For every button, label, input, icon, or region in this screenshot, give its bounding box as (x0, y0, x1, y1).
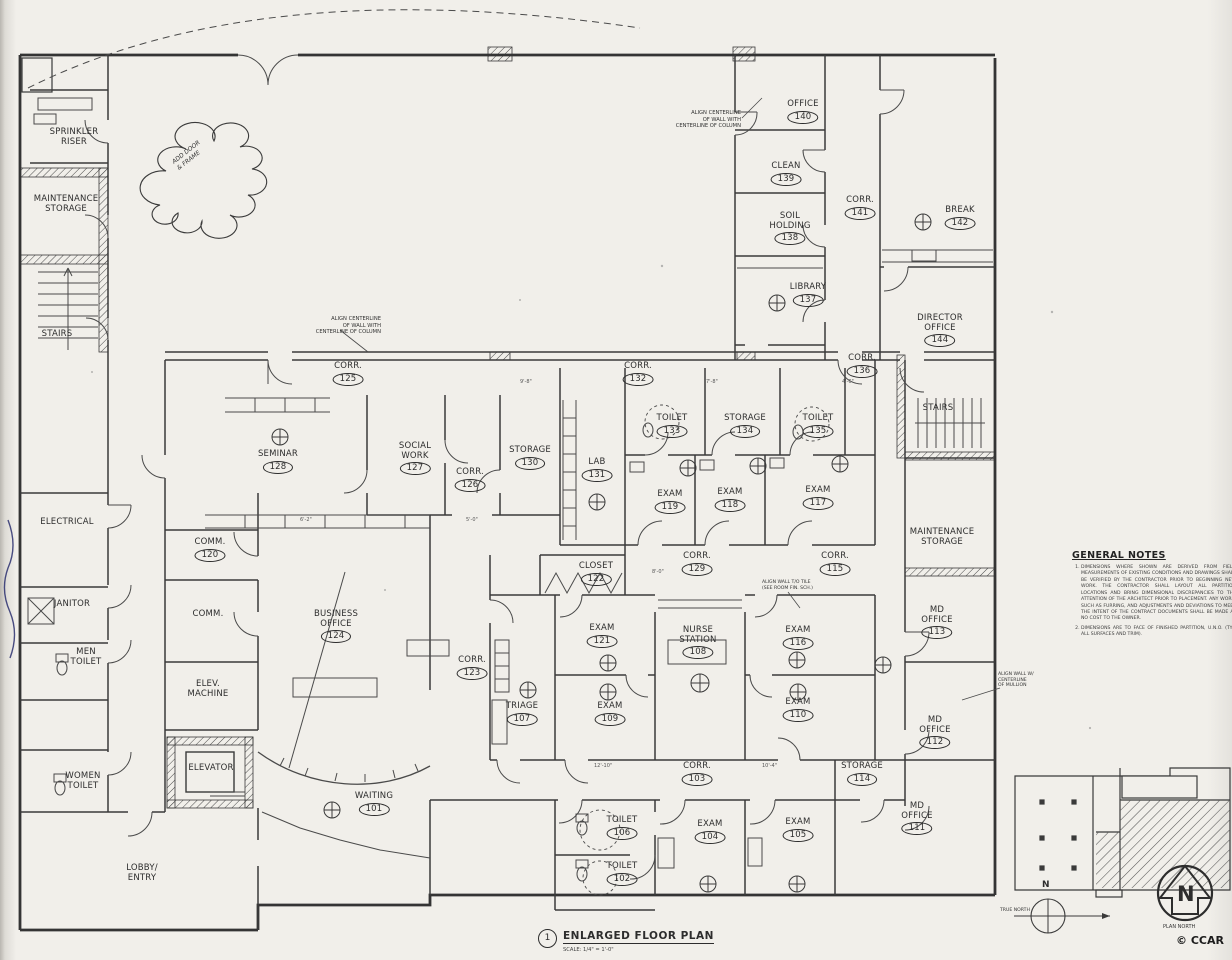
room-name: STAIRS (923, 403, 954, 413)
room-name: WOMEN TOILET (65, 771, 100, 791)
room-name: CORR. (846, 195, 874, 205)
room-name: CORR. (848, 353, 876, 363)
room-maintenance-storage-nw: MAINTENANCE STORAGE (34, 195, 99, 214)
general-notes-heading: GENERAL NOTES (1072, 550, 1232, 561)
room-name: CORR. (683, 761, 711, 771)
room-exam-121: EXAM121 (587, 624, 618, 648)
room-name: TRIAGE (506, 701, 538, 711)
dimension-label: 10'-4" (762, 763, 777, 769)
room-exam-105: EXAM105 (783, 818, 814, 842)
room-name: SOIL HOLDING (769, 211, 810, 231)
room-corr-129: CORR.129 (682, 552, 713, 576)
general-note-item: DIMENSIONS ARE TO FACE OF FINISHED PARTI… (1081, 626, 1232, 639)
room-name: MEN TOILET (71, 647, 102, 667)
room-name: EXAM (785, 817, 810, 827)
room-number-oval: 134 (730, 425, 761, 438)
room-number-oval: 130 (515, 457, 546, 470)
room-clean-139: CLEAN139 (771, 162, 802, 186)
room-name: EXAM (785, 625, 810, 635)
room-number-oval: 108 (683, 646, 714, 659)
stair-treads (38, 268, 985, 448)
room-number-oval: 113 (922, 626, 953, 639)
room-name: TOILET (803, 413, 834, 423)
room-name: COMM. (195, 537, 226, 547)
room-name: STAIRS (42, 329, 73, 339)
room-number-oval: 109 (595, 713, 626, 726)
room-md-office-113: MD OFFICE113 (921, 606, 952, 639)
room-number-oval: 141 (845, 207, 876, 220)
room-corr-103: CORR.103 (682, 762, 713, 786)
room-number-oval: 122 (581, 573, 612, 586)
room-lab-131: LAB131 (582, 458, 613, 482)
room-name: TOILET (607, 861, 638, 871)
room-name: MD OFFICE (921, 605, 952, 625)
room-number-oval: 128 (263, 461, 294, 474)
room-name: MD OFFICE (919, 715, 950, 735)
room-number-oval: 118 (715, 499, 746, 512)
dimension-label: 12'-10" (594, 763, 612, 769)
room-name: OFFICE (787, 99, 818, 109)
room-corr-132: CORR.132 (623, 362, 654, 386)
room-name: TOILET (657, 413, 688, 423)
room-name: WAITING (355, 791, 393, 801)
room-name: EXAM (717, 487, 742, 497)
room-exam-117: EXAM117 (803, 486, 834, 510)
annotation-align-tile: ALIGN WALL T/O TILE (SEE ROOM FIN. SCH.) (762, 580, 846, 591)
room-number-oval: 137 (793, 294, 824, 307)
room-number-oval: 131 (582, 469, 613, 482)
dimension-label: 6'-2" (300, 517, 312, 523)
room-number-oval: 132 (623, 373, 654, 386)
annotation-align-column-1: ALIGN CENTERLINE OF WALL WITH CENTERLINE… (655, 110, 741, 130)
room-triage-107: TRIAGE107 (506, 702, 538, 726)
room-number-oval: 129 (682, 563, 713, 576)
room-name: SOCIAL WORK (399, 441, 431, 461)
dimension-label: 9'-8" (520, 379, 532, 385)
room-director-office-144: DIRECTOR OFFICE144 (917, 314, 963, 347)
room-seminar-128: SEMINAR128 (258, 450, 298, 474)
room-library-137: LIBRARY137 (790, 283, 826, 307)
room-name: STORAGE (841, 761, 883, 771)
room-number-oval: 127 (400, 462, 431, 475)
room-storage-134: STORAGE134 (724, 414, 766, 438)
room-exam-119: EXAM119 (655, 490, 686, 514)
room-business-office-124: BUSINESS OFFICE124 (314, 610, 358, 643)
dimension-label: 7'-8" (706, 379, 718, 385)
room-name: COMM. (193, 609, 224, 619)
room-sprinkler-riser: SPRINKLER RISER (50, 128, 99, 147)
room-number-oval: 116 (783, 637, 814, 650)
room-number-oval: 102 (607, 873, 638, 886)
room-name: TOILET (607, 815, 638, 825)
room-name: LAB (588, 457, 605, 467)
annotation-align-mullion: ALIGN WALL W/ CENTERLINE OF MULLION (998, 672, 1058, 689)
room-name: MAINTENANCE STORAGE (34, 194, 99, 214)
room-name: CORR. (624, 361, 652, 371)
room-toilet-106: TOILET106 (607, 816, 638, 840)
dimension-label: 5'-0" (466, 517, 478, 523)
copyright-text: © CCAR (1176, 934, 1224, 947)
room-name: JANITOR (54, 599, 90, 609)
room-name: LOBBY/ ENTRY (126, 863, 158, 883)
true-north-icon (1014, 899, 1110, 933)
room-name: CORR. (821, 551, 849, 561)
room-name: BREAK (945, 205, 975, 215)
room-number-oval: 135 (803, 425, 834, 438)
plan-title: ENLARGED FLOOR PLAN (563, 930, 714, 944)
room-name: CORR. (683, 551, 711, 561)
room-name: SPRINKLER RISER (50, 127, 99, 147)
room-elevator: ELEVATOR (188, 764, 233, 774)
room-storage-114: STORAGE114 (841, 762, 883, 786)
handwritten-mark (4, 520, 14, 658)
room-number-oval: 103 (682, 773, 713, 786)
room-corr-141: CORR.141 (845, 196, 876, 220)
room-number-oval: 133 (657, 425, 688, 438)
true-north-label: TRUE NORTH (1000, 908, 1030, 913)
door-swings (85, 55, 929, 879)
hatched-walls (20, 47, 995, 808)
room-social-work-127: SOCIAL WORK127 (399, 442, 431, 475)
room-name: EXAM (785, 697, 810, 707)
room-nurse-station-108: NURSE STATION108 (679, 626, 716, 659)
room-break-142: BREAK142 (945, 206, 976, 230)
interior-walls (20, 55, 995, 930)
room-corr-125: CORR.125 (333, 362, 364, 386)
room-exam-104: EXAM104 (695, 820, 726, 844)
room-number-oval: 110 (783, 709, 814, 722)
room-name: CORR. (458, 655, 486, 665)
room-name: BUSINESS OFFICE (314, 609, 358, 629)
room-stairs-ne: STAIRS (923, 404, 954, 414)
room-number-oval: 121 (587, 635, 618, 648)
room-name: ELEVATOR (188, 763, 233, 773)
room-number-oval: 104 (695, 831, 726, 844)
room-number-oval: 138 (775, 232, 806, 245)
room-elev-machine: ELEV. MACHINE (188, 680, 229, 699)
room-number-oval: 142 (945, 217, 976, 230)
room-soil-holding-138: SOIL HOLDING138 (769, 212, 810, 245)
plan-north-letter: N (1177, 882, 1195, 906)
floor-plan-sheet: SPRINKLER RISER MAINTENANCE STORAGE STAI… (0, 0, 1232, 960)
key-plan (1015, 768, 1230, 897)
room-number-oval: 119 (655, 501, 686, 514)
room-name: ELEV. MACHINE (188, 679, 229, 699)
room-number-oval: 126 (455, 479, 486, 492)
room-name: CORR. (334, 361, 362, 371)
dimension-label: 8'-0" (652, 569, 664, 575)
room-women-toilet: WOMEN TOILET (65, 772, 100, 791)
room-name: MD OFFICE (901, 801, 932, 821)
room-corr-115: CORR.115 (820, 552, 851, 576)
room-number-oval: 112 (920, 736, 951, 749)
room-electrical: ELECTRICAL (40, 518, 94, 528)
room-name: STORAGE (509, 445, 551, 455)
true-north-letter: N (1042, 880, 1050, 890)
room-number-oval: 114 (847, 773, 878, 786)
room-toilet-135: TOILET135 (803, 414, 834, 438)
room-men-toilet: MEN TOILET (71, 648, 102, 667)
room-name: EXAM (597, 701, 622, 711)
exterior-walls (20, 55, 995, 930)
room-number-oval: 124 (321, 630, 352, 643)
plan-number-bubble: 1 (538, 929, 557, 948)
room-md-office-112: MD OFFICE112 (919, 716, 950, 749)
room-number-oval: 111 (902, 822, 933, 835)
room-number-oval: 125 (333, 373, 364, 386)
room-number-oval: 106 (607, 827, 638, 840)
room-maintenance-storage-e: MAINTENANCE STORAGE (910, 528, 975, 547)
room-name: SEMINAR (258, 449, 298, 459)
plan-scale: SCALE: 1/4" = 1'-0" (563, 947, 614, 953)
room-name: EXAM (697, 819, 722, 829)
plan-north-label: PLAN NORTH (1163, 924, 1195, 930)
room-name: CORR. (456, 467, 484, 477)
room-stairs-nw: STAIRS (42, 330, 73, 340)
room-comm-120: COMM.120 (195, 538, 226, 562)
room-name: EXAM (805, 485, 830, 495)
general-note-item: DIMENSIONS WHERE SHOWN ARE DERIVED FROM … (1081, 565, 1232, 623)
room-number-oval: 139 (771, 173, 802, 186)
room-name: CLOSET (579, 561, 613, 571)
room-name: CLEAN (771, 161, 800, 171)
room-exam-116: EXAM116 (783, 626, 814, 650)
room-name: NURSE STATION (679, 625, 716, 645)
room-number-oval: 105 (783, 829, 814, 842)
room-corr-126: CORR.126 (455, 468, 486, 492)
room-name: STORAGE (724, 413, 766, 423)
room-number-oval: 140 (788, 111, 819, 124)
general-notes: GENERAL NOTES DIMENSIONS WHERE SHOWN ARE… (1072, 550, 1232, 642)
room-number-oval: 136 (847, 365, 878, 378)
room-exam-109: EXAM109 (595, 702, 626, 726)
room-toilet-102: TOILET102 (607, 862, 638, 886)
revision-cloud (140, 123, 267, 239)
room-comm: COMM. (193, 610, 224, 620)
room-name: ELECTRICAL (40, 517, 94, 527)
dimension-label: 4'-6" (842, 379, 854, 385)
room-corr-136: CORR.136 (847, 354, 878, 378)
room-waiting-101: WAITING101 (355, 792, 393, 816)
annotation-align-column-2: ALIGN CENTERLINE OF WALL WITH CENTERLINE… (293, 316, 381, 336)
room-exam-110: EXAM110 (783, 698, 814, 722)
room-name: EXAM (657, 489, 682, 499)
room-number-oval: 123 (457, 667, 488, 680)
room-number-oval: 101 (359, 803, 390, 816)
room-exam-118: EXAM118 (715, 488, 746, 512)
room-corr-123: CORR.123 (457, 656, 488, 680)
room-number-oval: 120 (195, 549, 226, 562)
room-md-office-111: MD OFFICE111 (901, 802, 932, 835)
room-name: LIBRARY (790, 282, 826, 292)
room-number-oval: 144 (925, 334, 956, 347)
room-name: DIRECTOR OFFICE (917, 313, 963, 333)
room-number-oval: 117 (803, 497, 834, 510)
room-number-oval: 107 (507, 713, 538, 726)
room-number-oval: 115 (820, 563, 851, 576)
room-closet-122: CLOSET122 (579, 562, 613, 586)
room-janitor: JANITOR (54, 600, 90, 610)
room-office-140: OFFICE140 (787, 100, 818, 124)
room-name: MAINTENANCE STORAGE (910, 527, 975, 547)
room-lobby-entry: LOBBY/ ENTRY (126, 864, 158, 883)
room-toilet-133: TOILET133 (657, 414, 688, 438)
room-name: EXAM (589, 623, 614, 633)
room-storage-130: STORAGE130 (509, 446, 551, 470)
